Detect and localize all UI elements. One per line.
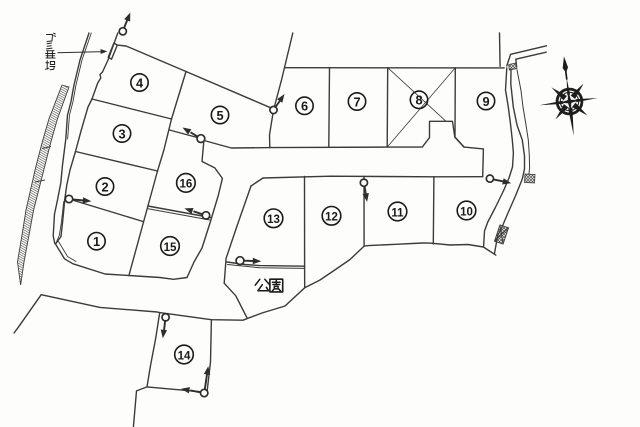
- svg-text:5: 5: [216, 108, 223, 123]
- svg-text:15: 15: [164, 242, 177, 254]
- svg-text:6: 6: [301, 99, 308, 114]
- svg-text:12: 12: [325, 212, 338, 224]
- svg-text:7: 7: [353, 94, 360, 109]
- svg-text:1: 1: [93, 234, 100, 249]
- svg-text:9: 9: [482, 94, 489, 109]
- svg-text:4: 4: [136, 75, 144, 90]
- svg-text:8: 8: [415, 93, 422, 108]
- svg-text:10: 10: [460, 206, 473, 218]
- svg-text:14: 14: [178, 350, 191, 362]
- svg-text:3: 3: [118, 126, 125, 141]
- svg-text:11: 11: [391, 207, 404, 219]
- svg-text:2: 2: [101, 179, 108, 194]
- svg-text:16: 16: [180, 179, 193, 191]
- svg-text:13: 13: [267, 214, 280, 226]
